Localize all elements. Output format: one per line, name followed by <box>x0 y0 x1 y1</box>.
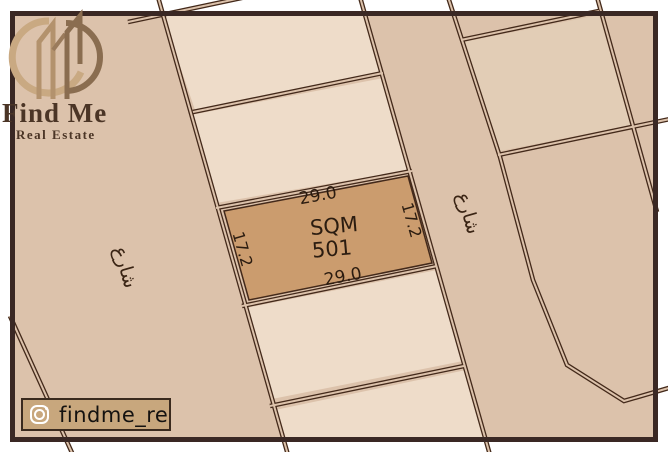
instagram-badge: findme_re <box>21 398 171 431</box>
brand-tagline: Real Estate <box>16 127 96 143</box>
logo-building-left <box>39 24 53 99</box>
real-estate-flyer: 29.0 29.0 17.2 17.2 SQM 501 شارع شارع Fi… <box>0 0 668 452</box>
instagram-icon <box>27 402 52 427</box>
instagram-handle: findme_re <box>59 403 168 427</box>
brand-name: Find Me <box>2 98 107 129</box>
buildings-circle-logo-icon <box>4 2 104 102</box>
plot-area-value: 501 <box>311 235 353 262</box>
instagram-icon-dot <box>45 407 48 410</box>
brand-logo: Find Me Real Estate <box>0 0 130 146</box>
instagram-icon-lens <box>34 409 45 420</box>
